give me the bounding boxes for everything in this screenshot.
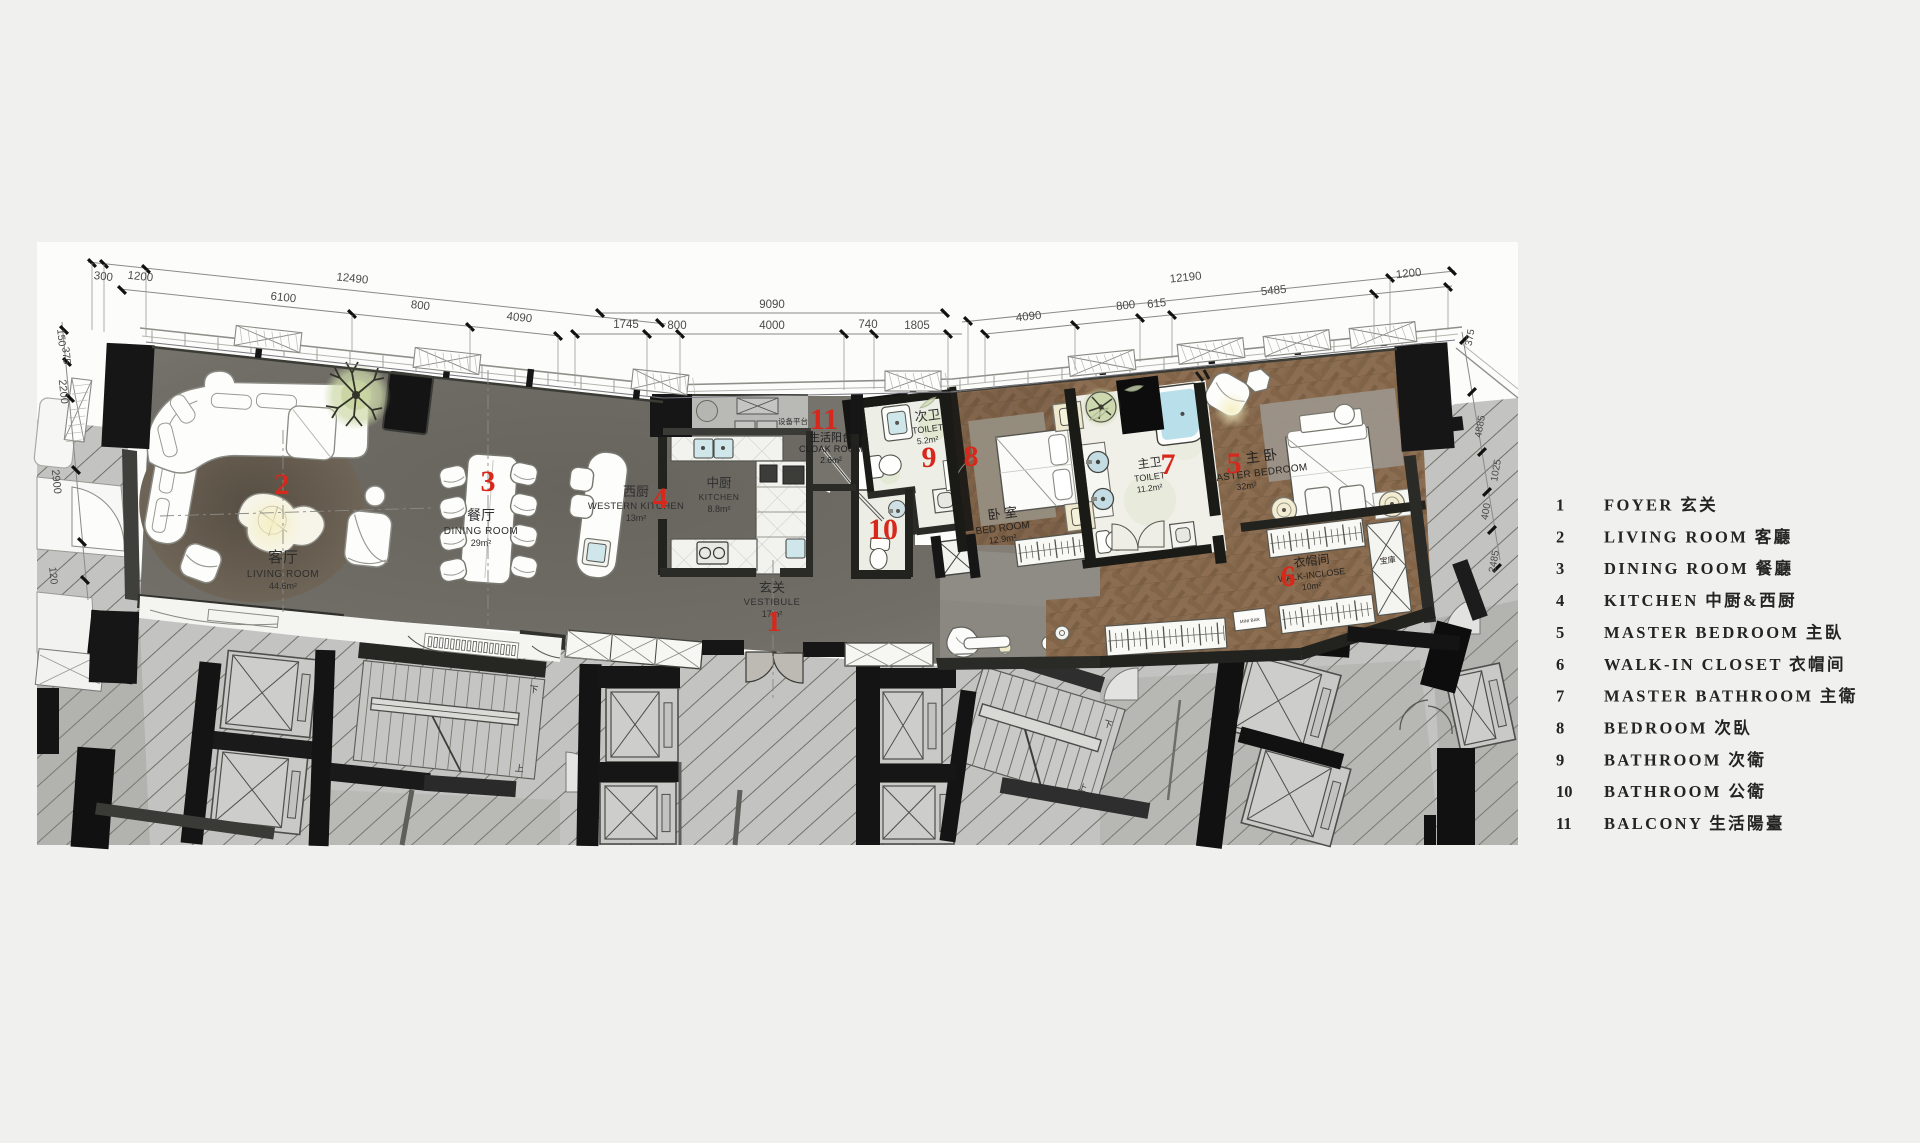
svg-text:2: 2 — [1556, 527, 1564, 546]
svg-text:KITCHEN 中厨&西厨: KITCHEN 中厨&西厨 — [1604, 590, 1797, 610]
svg-text:LIVING ROOM 客廳: LIVING ROOM 客廳 — [1604, 526, 1793, 546]
svg-text:1: 1 — [767, 605, 782, 638]
svg-text:615: 615 — [1147, 297, 1167, 311]
svg-text:375: 375 — [59, 346, 73, 365]
svg-text:DINING ROOM: DINING ROOM — [444, 526, 518, 537]
svg-text:7: 7 — [1556, 687, 1564, 706]
svg-text:KITCHEN: KITCHEN — [699, 492, 740, 502]
svg-text:WESTERN KITCHEN: WESTERN KITCHEN — [588, 501, 684, 512]
svg-text:9: 9 — [1556, 750, 1564, 769]
svg-text:120: 120 — [46, 566, 60, 585]
svg-text:MASTER BATHROOM 主衛: MASTER BATHROOM 主衛 — [1604, 686, 1858, 706]
svg-text:5: 5 — [1227, 447, 1242, 480]
svg-text:LIVING ROOM: LIVING ROOM — [247, 569, 319, 580]
svg-text:8: 8 — [1556, 719, 1564, 738]
svg-text:3: 3 — [1556, 559, 1564, 578]
svg-text:BALCONY 生活陽臺: BALCONY 生活陽臺 — [1604, 813, 1785, 833]
svg-text:2: 2 — [275, 468, 290, 501]
svg-text:1: 1 — [1556, 496, 1564, 515]
svg-text:6: 6 — [1556, 655, 1564, 674]
svg-text:2.6m²: 2.6m² — [820, 455, 842, 465]
svg-text:客厅: 客厅 — [268, 549, 298, 566]
svg-text:4000: 4000 — [759, 320, 785, 332]
svg-text:7: 7 — [1161, 448, 1176, 481]
svg-text:WALK-IN CLOSET 衣帽间: WALK-IN CLOSET 衣帽间 — [1604, 654, 1846, 674]
svg-text:300: 300 — [93, 270, 113, 284]
svg-text:11: 11 — [1556, 814, 1572, 833]
svg-text:西厨: 西厨 — [623, 484, 649, 499]
svg-text:150: 150 — [54, 328, 68, 347]
svg-text:1805: 1805 — [904, 320, 930, 332]
svg-text:中厨: 中厨 — [706, 475, 731, 490]
svg-text:800: 800 — [667, 320, 686, 332]
svg-text:餐厅: 餐厅 — [467, 507, 495, 523]
svg-text:13m²: 13m² — [626, 513, 647, 523]
svg-text:9: 9 — [922, 441, 937, 474]
svg-text:10: 10 — [868, 513, 898, 546]
svg-text:下: 下 — [529, 684, 539, 695]
svg-text:44.6m²: 44.6m² — [269, 581, 297, 591]
svg-text:6: 6 — [1281, 560, 1296, 593]
svg-text:8: 8 — [964, 440, 979, 473]
svg-text:2200: 2200 — [56, 379, 70, 405]
svg-text:设备平台: 设备平台 — [778, 416, 808, 426]
svg-text:FOYER 玄关: FOYER 玄关 — [1604, 495, 1718, 515]
svg-text:29m²: 29m² — [471, 538, 492, 548]
svg-text:2900: 2900 — [49, 469, 63, 495]
svg-text:主卫: 主卫 — [1137, 455, 1163, 472]
svg-text:8.8m²: 8.8m² — [707, 504, 730, 514]
svg-text:BATHROOM 次衛: BATHROOM 次衛 — [1604, 749, 1766, 769]
svg-text:4: 4 — [653, 482, 668, 515]
svg-text:4: 4 — [1556, 591, 1564, 610]
svg-text:3: 3 — [481, 465, 496, 498]
svg-text:BATHROOM 公衛: BATHROOM 公衛 — [1604, 781, 1766, 801]
svg-text:800: 800 — [410, 299, 430, 313]
svg-text:DINING ROOM 餐廳: DINING ROOM 餐廳 — [1604, 558, 1793, 578]
svg-text:CLOAK ROOM: CLOAK ROOM — [799, 444, 863, 454]
svg-text:MASTER BEDROOM 主臥: MASTER BEDROOM 主臥 — [1604, 622, 1844, 642]
svg-text:9090: 9090 — [759, 299, 785, 311]
svg-text:宝庫: 宝庫 — [1379, 554, 1396, 566]
svg-text:740: 740 — [858, 319, 877, 331]
svg-text:玄关: 玄关 — [759, 580, 785, 595]
svg-text:5: 5 — [1556, 623, 1564, 642]
svg-text:800: 800 — [1116, 299, 1136, 313]
svg-text:BEDROOM 次臥: BEDROOM 次臥 — [1604, 718, 1752, 738]
svg-text:10: 10 — [1556, 782, 1573, 801]
svg-text:1745: 1745 — [613, 319, 639, 331]
svg-text:上: 上 — [514, 763, 524, 774]
svg-text:11: 11 — [810, 403, 838, 436]
